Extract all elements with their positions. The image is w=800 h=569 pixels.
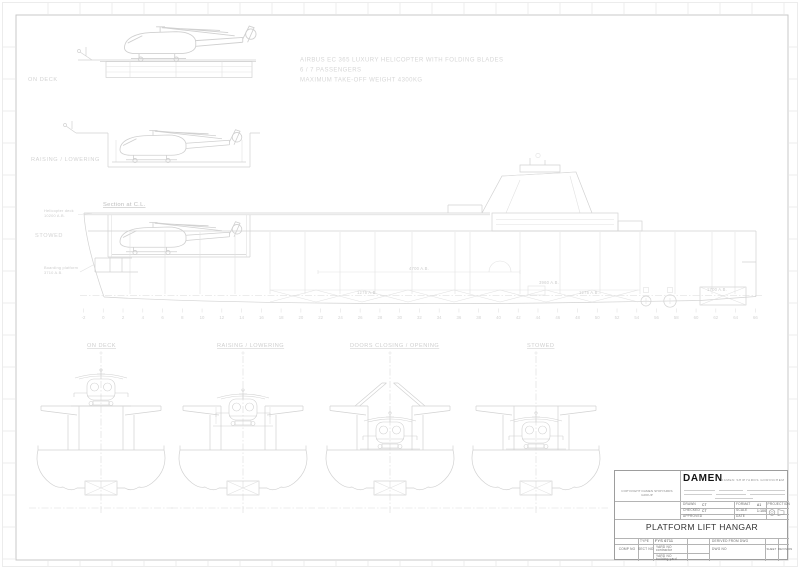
projection-symbol-icon [767,506,787,518]
frame-number: 12 [219,315,224,320]
format-value: A1 [757,503,761,507]
yard-no-building-sub: building yard [656,558,677,562]
frame-number: 40 [496,315,501,320]
frame-number: 62 [713,315,718,320]
hull-frame-lines [130,232,735,294]
frame-number: 10 [200,315,205,320]
frame-number: 18 [279,315,284,320]
bottom-label-on-deck: ON DECK [87,343,116,349]
frame-number: 38 [476,315,481,320]
bottom-label-stowed: STOWED [527,343,554,349]
address-fineprint [716,494,746,495]
frame-number: 24 [338,315,343,320]
label-raising-lowering: RAISING / LOWERING [31,157,100,163]
helicopter-note-line1: AIRBUS EC 365 LUXURY HELICOPTER WITH FOL… [300,58,503,64]
dwg-no-label: DWG NO [712,548,727,552]
revision-label: REVISION [778,549,789,552]
helicopter-front-doors [360,412,420,449]
frame-number: 22 [318,315,323,320]
label-on-deck: ON DECK [28,77,58,83]
scale-label: SCALE [736,509,747,513]
dim-1700: 1700 A.B. [707,287,727,292]
helicopter-side-stowed [120,222,242,255]
frame-number: 28 [378,315,383,320]
checked-label: CHECKED [683,509,700,513]
frame-number: 30 [397,315,402,320]
frame-number: 2 [122,315,125,320]
frame-number: 50 [595,315,600,320]
type-value: FYS 6711 [655,539,673,543]
label-stowed: STOWED [35,233,63,239]
address-fineprint [747,490,785,491]
frame-number: 42 [516,315,521,320]
detail-view-on-deck [78,26,257,77]
drawing-title: PLATFORM LIFT HANGAR [615,522,789,532]
copyright-text: COPYRIGHT DAMEN SHIPYARDS GROUP [617,489,677,497]
frame-number: 52 [615,315,620,320]
frame-number: 4 [142,315,145,320]
title-block: DAMEN DAMEN SHIPYARDS GORINCHEM COPYRIGH… [614,470,788,560]
type-label: TYPE [640,540,649,544]
sect-no-label: SECT NO [638,548,653,552]
frame-number: 26 [358,315,363,320]
xsec-stowed [464,351,608,514]
frame-number-scale: -202468101214161820222426283032343638404… [82,309,759,321]
address-fineprint [684,490,715,491]
helicopter-front-stowed [506,412,566,449]
helicopter-note-line3: MAXIMUM TAKE-OFF WEIGHT 4300KG [300,78,423,84]
xsec-doors-opening [318,351,462,514]
frame-number: 54 [634,315,639,320]
callout-heli-deck-value: 10200 A.B. [44,213,65,218]
frame-number: 58 [674,315,679,320]
xsec-raising-lowering [171,351,315,514]
comp-no-label: COMP NO [616,548,638,552]
date-label: DATE [736,515,745,519]
frame-number: 56 [654,315,659,320]
frame-number: 20 [298,315,303,320]
checked-value: CT [702,509,707,513]
address-fineprint [684,494,712,495]
frame-number: 32 [417,315,422,320]
section-title: Section at C.L. [103,202,146,208]
frame-number: 0 [102,315,105,320]
format-label: FORMAT [736,503,750,507]
frame-number: 46 [555,315,560,320]
yard-no-contractor-sub: contractor [656,549,672,553]
frame-number: 60 [694,315,699,320]
frame-number: -2 [82,315,86,320]
drawing-sheet: -202468101214161820222426283032343638404… [0,0,800,569]
profile-view: -202468101214161820222426283032343638404… [80,153,762,320]
drawn-value: CT [702,503,707,507]
address-fineprint [719,490,743,491]
dim-3960: 3960 A.B. [539,280,559,285]
frame-number: 14 [239,315,244,320]
bottom-label-doors: DOORS CLOSING / OPENING [350,343,439,349]
dim-1275-fwd: 1275 A.B. [357,290,377,295]
frame-number: 48 [575,315,580,320]
frame-number: 34 [437,315,442,320]
frame-number: 6 [161,315,164,320]
derived-label: DERIVED FROM DWG [712,540,748,544]
frame-number: 66 [753,315,758,320]
sheet-label: SHEET [765,549,778,552]
frame-number: 36 [457,315,462,320]
frame-number: 64 [733,315,738,320]
approved-label: APPROVED [683,515,702,519]
scale-value: 1:100 [757,509,766,513]
frame-number: 8 [181,315,184,320]
callout-boarding-value: 3710 A.B. [44,270,63,275]
address-fineprint [715,498,753,499]
bottom-label-raising-lowering: RAISING / LOWERING [217,343,284,349]
damen-logo: DAMEN [683,473,723,484]
dim-4700: 4700 A.B. [409,266,429,271]
helicopter-note-line2: 6 / 7 PASSENGERS [300,68,361,74]
drawn-label: DRAWN [683,503,696,507]
address-fineprint [750,494,785,495]
helicopter-side-on-deck [124,26,256,61]
dim-1275-aft: 1275 A.B. [579,290,599,295]
frame-number: 16 [259,315,264,320]
damen-logo-subtitle: DAMEN SHIPYARDS GORINCHEM [721,478,785,482]
frame-number: 44 [536,315,541,320]
xsec-on-deck [29,351,173,514]
helicopter-side-raising [120,130,242,163]
